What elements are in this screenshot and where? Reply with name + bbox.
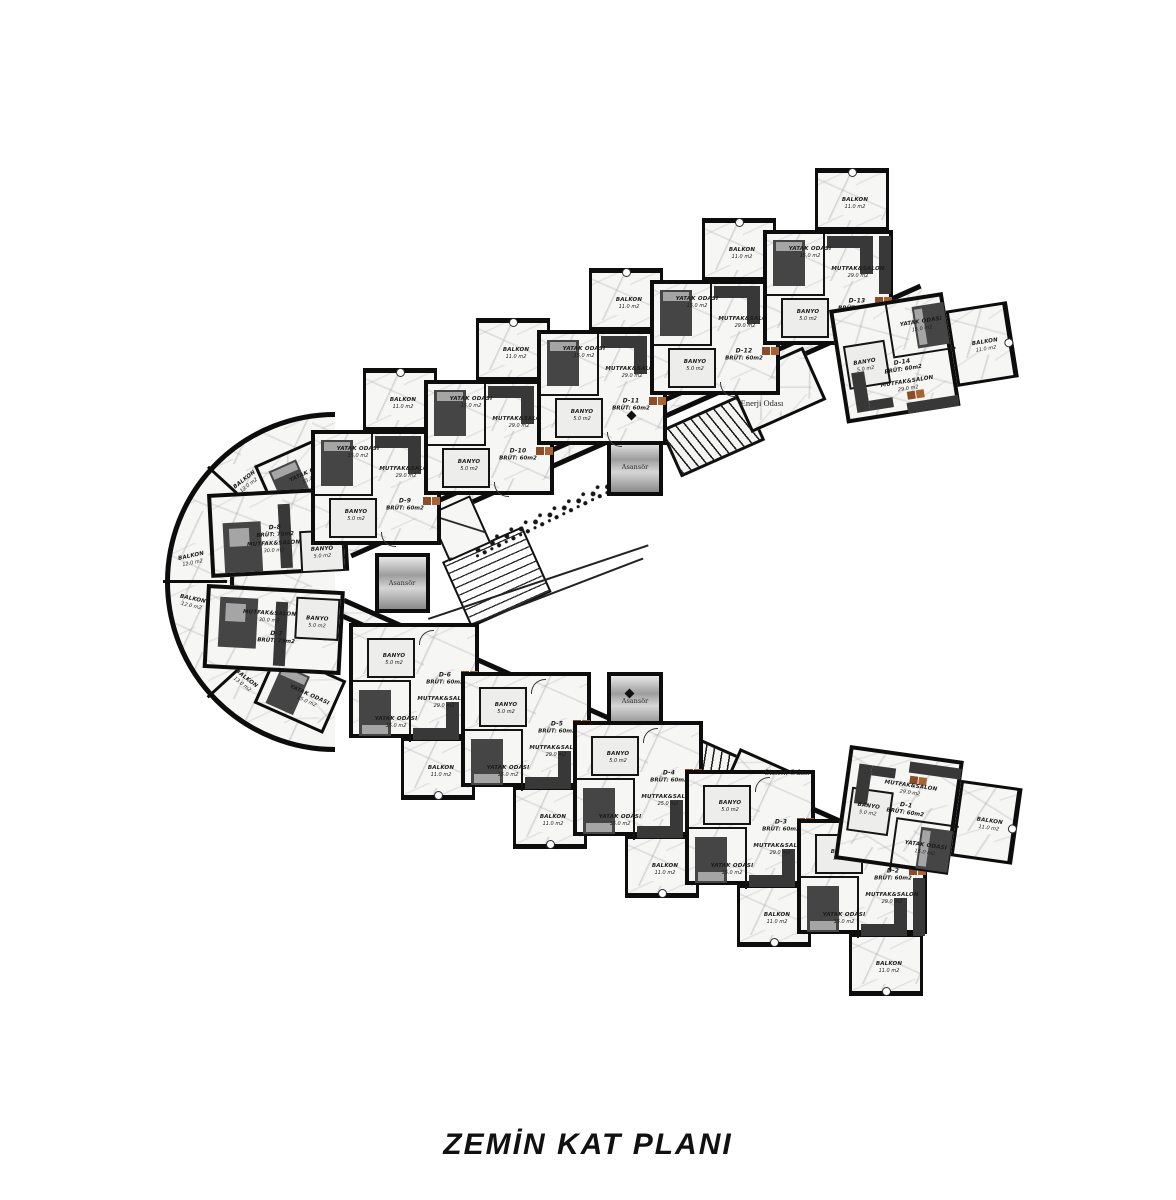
room-label-yatak-area: 15.0 m2	[676, 303, 719, 310]
room-label-banyo: BANYO5.0 m2	[495, 702, 518, 716]
stove	[762, 347, 770, 355]
balcony-door-hinge-icon	[1004, 338, 1014, 348]
room-label-mutfak: MUTFAK&SALON29.0 m2	[831, 266, 884, 280]
room-label-mutfak-area: 29.0 m2	[865, 899, 918, 906]
interior-wall	[889, 819, 898, 871]
unit-body: MUTFAK&SALON29.0 m2D-1BRÜT: 60m2BANYO5.0…	[834, 745, 964, 875]
stove	[432, 497, 440, 505]
balcony-label-area: 11.0 m2	[764, 919, 790, 926]
room-label-banyo: BANYO5.0 m2	[383, 653, 406, 667]
room-label-banyo: BANYO5.0 m2	[458, 459, 481, 473]
unit-D-9: BALKON11.0 m2YATAK ODASI15.0 m2MUTFAK&SA…	[311, 368, 441, 545]
sofa	[601, 336, 647, 348]
door-arc-icon	[607, 432, 622, 447]
room-label-banyo-area: 5.0 m2	[311, 553, 334, 561]
door-arc-icon	[494, 482, 509, 497]
room-label-mutfak: MUTFAK&SALON30.0 m2	[242, 609, 296, 625]
room-label-yatak-name: YATAK ODASI	[450, 396, 493, 403]
unit-id-label: D-8BRÜT: 75m2	[256, 523, 294, 540]
unit-id-label: D-9BRÜT: 60m2	[386, 498, 424, 513]
balcony-label: BALKON11.0 m2	[428, 765, 454, 779]
room-label-yatak: YATAK ODASI15.0 m2	[563, 346, 606, 360]
unit-D-7: MUTFAK&SALON30.0 m2D-7BRÜT: 75m2BANYO5.0…	[203, 584, 345, 675]
unit-id-label: D-6BRÜT: 60m2	[426, 672, 464, 687]
room-label-banyo-area: 5.0 m2	[458, 466, 481, 473]
sofa	[714, 286, 760, 298]
room-label-banyo: BANYO5.0 m2	[571, 409, 594, 423]
sofa	[413, 728, 459, 740]
energy-room-label: Enerji Odası	[741, 398, 784, 408]
room-label-yatak: YATAK ODASI15.0 m2	[823, 912, 866, 926]
balcony-label: BALKON11.0 m2	[616, 297, 642, 311]
sofa	[869, 397, 894, 411]
room-label-yatak-area: 15.0 m2	[599, 821, 642, 828]
system-room-label: Sistem Odası	[764, 767, 809, 777]
unit-body: YATAK ODASI15.0 m2MUTFAK&SALON29.0 m2D-1…	[424, 380, 554, 495]
unit-id-label: D-7BRÜT: 75m2	[257, 629, 295, 646]
room-label-banyo-area: 5.0 m2	[719, 807, 742, 814]
room-label-banyo-area: 5.0 m2	[306, 623, 329, 631]
room-label-banyo-area: 5.0 m2	[571, 416, 594, 423]
plan-title: ZEMİN KAT PLANI	[0, 1128, 1176, 1162]
unit-id-label-name: D-9	[386, 498, 424, 506]
balcony-label-area: 11.0 m2	[390, 404, 416, 411]
room-label-banyo-name: BANYO	[458, 459, 481, 466]
balcony-label-area: 11.0 m2	[428, 772, 454, 779]
stove	[536, 447, 544, 455]
interior-wall	[521, 729, 523, 791]
balcony-label-area: 11.0 m2	[616, 304, 642, 311]
balcony-door-hinge-icon	[882, 987, 891, 996]
unit-id-label-name: D-5	[538, 721, 576, 729]
room-label-yatak: YATAK ODASI15.0 m2	[337, 446, 380, 460]
interior-wall	[484, 384, 486, 446]
room-label-yatak: YATAK ODASI15.0 m2	[676, 296, 719, 310]
balcony-label: BALKON11.0 m2	[842, 197, 868, 211]
unit-id-label-name: D-3	[762, 819, 800, 827]
unit-id-label-area: BRÜT: 60m2	[725, 355, 763, 362]
room-label-yatak-name: YATAK ODASI	[711, 863, 754, 870]
room-label-banyo-name: BANYO	[607, 751, 630, 758]
interior-wall	[633, 778, 635, 840]
room-label-yatak-area: 15.0 m2	[450, 403, 493, 410]
room-label-banyo-name: BANYO	[571, 409, 594, 416]
balcony: BALKON11.0 m2	[951, 780, 1023, 865]
unit-D-11: BALKON11.0 m2YATAK ODASI15.0 m2MUTFAK&SA…	[537, 268, 667, 445]
room-label-yatak-name: YATAK ODASI	[487, 765, 530, 772]
room-label-banyo-area: 5.0 m2	[495, 709, 518, 716]
room-label-yatak: YATAK ODASI15.0 m2	[599, 814, 642, 828]
balcony-label: BALKON11.0 m2	[975, 817, 1003, 834]
balcony: BALKON11.0 m2	[849, 934, 923, 996]
cap-divider	[163, 580, 227, 583]
room-label-yatak: YATAK ODASI15.0 m2	[375, 716, 418, 730]
stove	[649, 397, 657, 405]
room-label-yatak-area: 15.0 m2	[789, 253, 832, 260]
balcony-label-name: BALKON	[729, 247, 755, 254]
room-label-banyo-area: 5.0 m2	[383, 660, 406, 667]
sofa	[525, 777, 571, 789]
unit-id-label-area: BRÜT: 60m2	[874, 875, 912, 882]
room-label-banyo: BANYO5.0 m2	[345, 509, 368, 523]
sofa	[375, 436, 421, 448]
balcony-label: BALKON11.0 m2	[971, 337, 999, 355]
interior-wall	[823, 234, 825, 296]
balcony: BALKON11.0 m2	[946, 301, 1019, 387]
door-arc-icon	[643, 728, 658, 743]
interior-wall	[745, 827, 747, 889]
unit-id-label-name: D-4	[650, 770, 688, 778]
unit-id-label: D-14BRÜT: 60m2	[883, 356, 923, 377]
door-arc-icon	[381, 532, 396, 547]
interior-wall	[409, 680, 411, 742]
room-label-banyo: BANYO5.0 m2	[719, 800, 742, 814]
interior-wall	[654, 344, 710, 346]
stove	[545, 447, 553, 455]
unit-D-1: BALKON11.0 m2MUTFAK&SALON29.0 m2D-1BRÜT:…	[834, 745, 1025, 884]
interior-wall	[896, 817, 959, 828]
room-label-yatak-name: YATAK ODASI	[337, 446, 380, 453]
unit-body: YATAK ODASI15.0 m2BANYO5.0 m2D-14BRÜT: 6…	[829, 292, 961, 424]
balcony-label-name: BALKON	[390, 397, 416, 404]
unit-id-label-name: D-10	[499, 448, 537, 456]
balcony-door-hinge-icon	[546, 840, 555, 849]
room-label-yatak-area: 15.0 m2	[711, 870, 754, 877]
unit-D-12: BALKON11.0 m2YATAK ODASI15.0 m2MUTFAK&SA…	[650, 218, 780, 395]
interior-wall	[857, 876, 859, 938]
interior-wall	[885, 305, 895, 357]
unit-id-label-area: BRÜT: 75m2	[257, 637, 295, 646]
room-label-yatak-name: YATAK ODASI	[563, 346, 606, 353]
room-label-banyo: BANYO5.0 m2	[311, 546, 334, 561]
interior-wall	[541, 394, 597, 396]
room-label-mutfak: MUTFAK&SALON29.0 m2	[865, 892, 918, 906]
unit-id-label-area: BRÜT: 60m2	[538, 728, 576, 735]
interior-wall	[353, 680, 409, 682]
sofa	[861, 924, 907, 936]
balcony-label-name: BALKON	[842, 197, 868, 204]
interior-wall	[767, 294, 823, 296]
sofa	[637, 826, 683, 838]
balcony-label-name: BALKON	[428, 765, 454, 772]
door-arc-icon	[531, 679, 546, 694]
sofa	[871, 765, 896, 778]
room-label-yatak: YATAK ODASI15.0 m2	[450, 396, 493, 410]
room-label-yatak-area: 15.0 m2	[337, 453, 380, 460]
room-label-yatak: YATAK ODASI15.0 m2	[711, 863, 754, 877]
unit-id-label-name: D-11	[612, 398, 650, 406]
unit-D-4: BALKON11.0 m2BANYO5.0 m2D-4BRÜT: 60m2MUT…	[573, 721, 703, 898]
room-label-banyo: BANYO5.0 m2	[856, 802, 880, 819]
door-arc-icon	[755, 777, 770, 792]
room-label-yatak-area: 15.0 m2	[487, 772, 530, 779]
stove	[423, 497, 431, 505]
unit-id-label-area: BRÜT: 60m2	[762, 826, 800, 833]
interior-wall	[371, 434, 373, 496]
unit-D-10: BALKON11.0 m2YATAK ODASI15.0 m2MUTFAK&SA…	[424, 318, 554, 495]
balcony-label-name: BALKON	[540, 814, 566, 821]
balcony-label: BALKON11.0 m2	[540, 814, 566, 828]
balcony-door-hinge-icon	[848, 168, 857, 177]
unit-id-label-name: D-12	[725, 348, 763, 356]
unit-id-label: D-12BRÜT: 60m2	[725, 348, 763, 363]
balcony-door-hinge-icon	[770, 938, 779, 947]
unit-id-label-area: BRÜT: 60m2	[499, 455, 537, 462]
unit-id-label-area: BRÜT: 60m2	[386, 505, 424, 512]
kitchen-counter	[879, 236, 891, 294]
balcony-label-area: 11.0 m2	[652, 870, 678, 877]
balcony-door-hinge-icon	[735, 218, 744, 227]
interior-wall	[465, 729, 521, 731]
room-label-banyo: BANYO5.0 m2	[797, 309, 820, 323]
unit-body: YATAK ODASI15.0 m2MUTFAK&SALON29.0 m2D-9…	[311, 430, 441, 545]
balcony-label: BALKON11.0 m2	[729, 247, 755, 261]
sofa	[749, 875, 795, 887]
room-label-yatak: YATAK ODASI15.0 m2	[789, 246, 832, 260]
balcony-label-name: BALKON	[876, 961, 902, 968]
unit-D-5: BALKON11.0 m2BANYO5.0 m2D-5BRÜT: 60m2MUT…	[461, 672, 591, 849]
room-label-mutfak-name: MUTFAK&SALON	[865, 892, 918, 899]
door-arc-icon	[419, 630, 434, 645]
room-label-banyo-area: 5.0 m2	[797, 316, 820, 323]
room-label-yatak: YATAK ODASI15.0 m2	[487, 765, 530, 779]
room-label-mutfak-area: 29.0 m2	[831, 273, 884, 280]
elevator-lower-label: Asansör	[622, 697, 648, 705]
interior-wall	[689, 827, 745, 829]
unit-id-label: D-5BRÜT: 60m2	[538, 721, 576, 736]
balcony-label-area: 11.0 m2	[540, 821, 566, 828]
balcony-label: BALKON11.0 m2	[876, 961, 902, 975]
unit-id-label-area: BRÜT: 60m2	[650, 777, 688, 784]
balcony-door-hinge-icon	[434, 791, 443, 800]
unit-id-label: D-1BRÜT: 60m2	[886, 799, 925, 819]
balcony-label-area: 11.0 m2	[729, 254, 755, 261]
balcony-door-hinge-icon	[658, 889, 667, 898]
balcony-label-area: 11.0 m2	[842, 204, 868, 211]
balcony: BALKON11.0 m2	[815, 168, 889, 230]
room-label-banyo-name: BANYO	[383, 653, 406, 660]
room-label-yatak-area: 15.0 m2	[823, 919, 866, 926]
balcony-door-hinge-icon	[1007, 824, 1017, 834]
interior-wall	[801, 876, 857, 878]
door-arc-icon	[720, 382, 735, 397]
room-label-banyo-area: 5.0 m2	[607, 758, 630, 765]
balcony-label: BALKON11.0 m2	[652, 863, 678, 877]
balcony-label-name: BALKON	[616, 297, 642, 304]
sofa	[827, 236, 873, 248]
room-label-banyo-name: BANYO	[719, 800, 742, 807]
balcony-label: BALKON11.0 m2	[503, 347, 529, 361]
unit-body: BANYO5.0 m2D-5BRÜT: 60m2MUTFAK&SALON29.0…	[461, 672, 591, 787]
room-label-yatak-name: YATAK ODASI	[789, 246, 832, 253]
unit-id-label: D-3BRÜT: 60m2	[762, 819, 800, 834]
room-label-yatak-name: YATAK ODASI	[823, 912, 866, 919]
room-label-banyo-area: 5.0 m2	[684, 366, 707, 373]
room-label-banyo-name: BANYO	[684, 359, 707, 366]
room-label-banyo: BANYO5.0 m2	[684, 359, 707, 373]
balcony-door-hinge-icon	[396, 368, 405, 377]
room-label-banyo: BANYO5.0 m2	[306, 615, 329, 630]
unit-D-6: BALKON11.0 m2BANYO5.0 m2D-6BRÜT: 60m2MUT…	[349, 623, 479, 800]
unit-id-label: D-10BRÜT: 60m2	[499, 448, 537, 463]
room-label-yatak-area: 15.0 m2	[563, 353, 606, 360]
room-label-banyo-name: BANYO	[797, 309, 820, 316]
balcony-door-hinge-icon	[622, 268, 631, 277]
elevator-upper-label: Asansör	[622, 463, 648, 471]
unit-id-label-name: D-6	[426, 672, 464, 680]
interior-wall	[710, 284, 712, 346]
interior-wall	[577, 778, 633, 780]
room-label-yatak-area: 15.0 m2	[375, 723, 418, 730]
unit-body: YATAK ODASI15.0 m2MUTFAK&SALON29.0 m2D-1…	[537, 330, 667, 445]
floor-plan: BALKON13.0 m2BALKON12.0 m2BALKON12.0 m2B…	[0, 0, 1176, 1200]
unit-id-label: D-4BRÜT: 60m2	[650, 770, 688, 785]
balcony-label: BALKON11.0 m2	[764, 912, 790, 926]
interior-wall	[315, 494, 371, 496]
room-label-mutfak-name: MUTFAK&SALON	[831, 266, 884, 273]
balcony-label-area: 11.0 m2	[503, 354, 529, 361]
room-label-yatak-name: YATAK ODASI	[676, 296, 719, 303]
sofa	[488, 386, 534, 398]
balcony-label-name: BALKON	[503, 347, 529, 354]
unit-D-3: BALKON11.0 m2BANYO5.0 m2D-3BRÜT: 60m2MUT…	[685, 770, 815, 947]
stove	[658, 397, 666, 405]
room-label-yatak-name: YATAK ODASI	[375, 716, 418, 723]
interior-wall	[893, 347, 956, 359]
balcony-door-hinge-icon	[509, 318, 518, 327]
room-label-mutfak: MUTFAK&SALON30.0 m2	[247, 539, 301, 555]
unit-id-label-area: BRÜT: 60m2	[426, 679, 464, 686]
unit-body: YATAK ODASI15.0 m2MUTFAK&SALON29.0 m2D-1…	[650, 280, 780, 395]
balcony-label-name: BALKON	[652, 863, 678, 870]
room-label-banyo-area: 5.0 m2	[345, 516, 368, 523]
interior-wall	[428, 444, 484, 446]
balcony-label: BALKON11.0 m2	[390, 397, 416, 411]
room-label-banyo: BANYO5.0 m2	[607, 751, 630, 765]
unit-body: BANYO5.0 m2D-6BRÜT: 60m2MUTFAK&SALON29.0…	[349, 623, 479, 738]
unit-id-label: D-2BRÜT: 60m2	[874, 868, 912, 883]
interior-wall	[597, 334, 599, 396]
balcony-label-name: BALKON	[764, 912, 790, 919]
room-label-banyo-name: BANYO	[345, 509, 368, 516]
stove	[771, 347, 779, 355]
room-label-yatak-name: YATAK ODASI	[599, 814, 642, 821]
unit-body: BANYO5.0 m2D-3BRÜT: 60m2MUTFAK&SALON29.0…	[685, 770, 815, 885]
unit-body: BANYO5.0 m2D-4BRÜT: 60m2MUTFAK&SALON25.0…	[573, 721, 703, 836]
balcony-label-area: 11.0 m2	[876, 968, 902, 975]
kitchen-counter	[913, 878, 925, 936]
room-label-banyo-name: BANYO	[495, 702, 518, 709]
elevator-vertex-label: Asansör	[389, 579, 415, 587]
